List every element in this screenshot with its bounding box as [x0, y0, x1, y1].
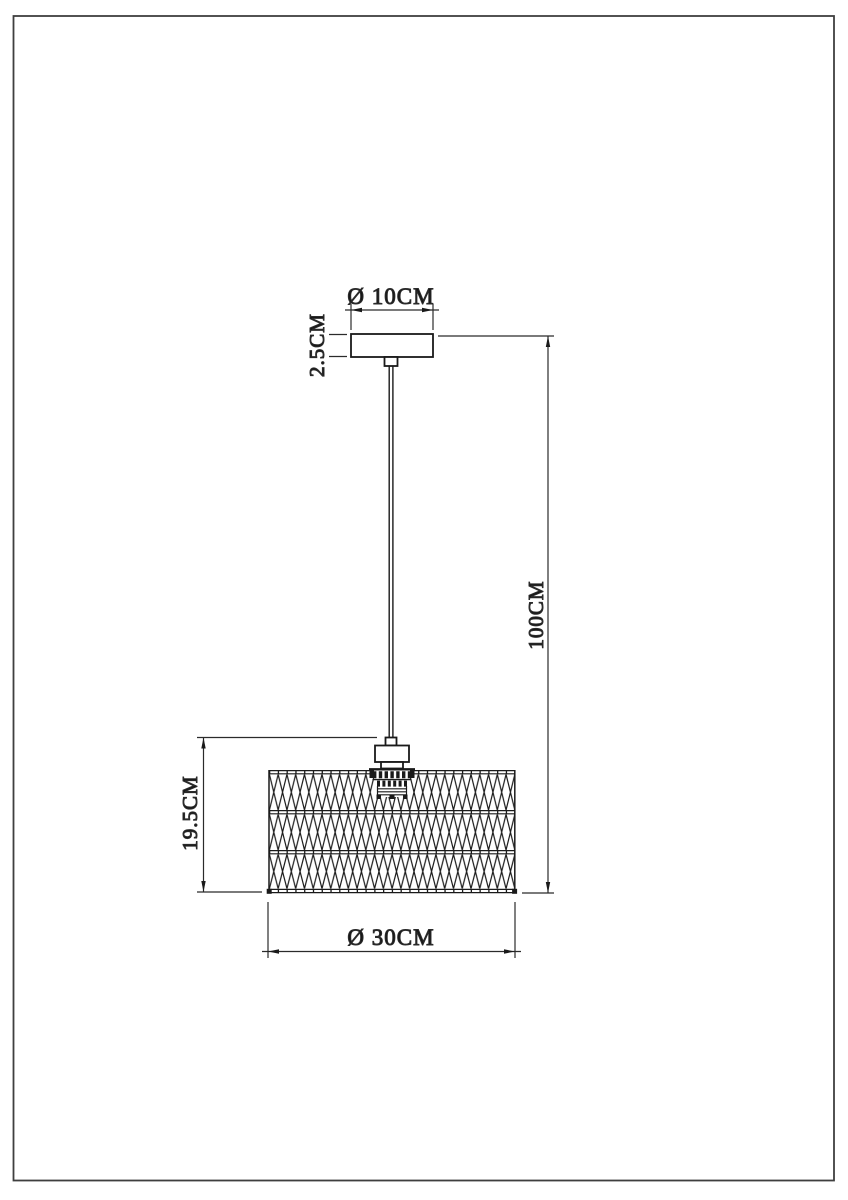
page-border — [14, 16, 835, 1181]
canopy-height-label: 2.5CM — [305, 313, 329, 377]
suspension-cord — [389, 366, 393, 738]
shade-lattice-band-3 — [269, 854, 514, 888]
shade-rail-mid-1 — [269, 811, 515, 814]
shade-corner-right — [512, 889, 517, 894]
dimension-shade-diameter: Ø 30CM — [262, 902, 521, 958]
dimension-canopy-height: 2.5CM — [305, 313, 347, 377]
socket-cap — [375, 746, 409, 763]
socket-neck — [381, 762, 403, 769]
shade-corner-left — [267, 889, 272, 894]
suspension-height-label: 100CM — [524, 580, 548, 649]
drawing-page: Ø 10CM 2.5CM 100CM 19.5CM — [0, 0, 848, 1200]
shade-height-label: 19.5CM — [178, 775, 202, 850]
shade-lattice-band-2 — [269, 814, 514, 850]
lamp-socket — [369, 738, 415, 800]
canopy-diameter-label: Ø 10CM — [347, 284, 434, 309]
pendant-lamp — [267, 334, 517, 894]
ceiling-canopy — [351, 334, 433, 357]
shade-diameter-label: Ø 30CM — [347, 925, 434, 950]
socket-cord-grip — [386, 738, 397, 746]
dimension-canopy-diameter: Ø 10CM — [345, 284, 439, 330]
pendant-lamp-technical-drawing: Ø 10CM 2.5CM 100CM 19.5CM — [0, 0, 848, 1200]
canopy-cord-grip — [385, 357, 398, 366]
shade-rail-bottom — [269, 889, 515, 892]
shade-rail-mid-2 — [269, 851, 515, 854]
